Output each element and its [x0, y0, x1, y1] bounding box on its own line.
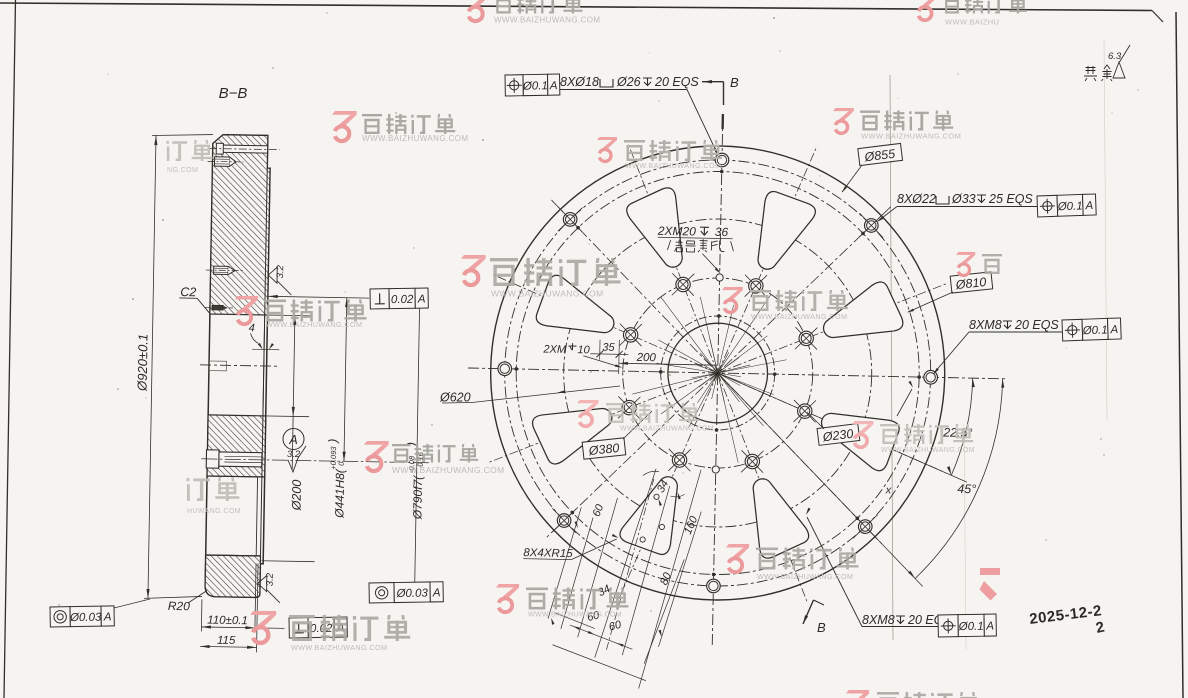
svg-text:20 EQS: 20 EQS	[1014, 318, 1059, 332]
svg-text:A: A	[1109, 324, 1118, 336]
svg-text:WWW.BAIZHUWANG.COM: WWW.BAIZHUWANG.COM	[861, 132, 961, 141]
svg-text:B: B	[817, 620, 826, 635]
svg-text:8X4XR15: 8X4XR15	[523, 547, 573, 560]
svg-text:R20: R20	[168, 599, 191, 613]
svg-text:A: A	[549, 80, 558, 92]
svg-text:Ø0.1: Ø0.1	[1057, 200, 1083, 213]
svg-text:WWW.BAIZHUWANG.COM: WWW.BAIZHUWANG.COM	[528, 612, 622, 619]
svg-text:C2: C2	[180, 285, 196, 299]
svg-text:Ø0.03: Ø0.03	[69, 612, 102, 625]
svg-text:WWW.BAIZHUWANG.COM: WWW.BAIZHUWANG.COM	[751, 312, 847, 321]
svg-text:x: x	[885, 484, 892, 496]
svg-text:WWW.BAIZHUWANG.COM: WWW.BAIZHUWANG.COM	[291, 643, 387, 652]
svg-text:WWW.BAIZHUWANG.COM: WWW.BAIZHUWANG.COM	[392, 465, 505, 475]
svg-text:A: A	[288, 433, 297, 447]
svg-text:0.02: 0.02	[391, 294, 414, 306]
svg-text:Ø0.03: Ø0.03	[395, 587, 428, 600]
svg-text:8XØ22: 8XØ22	[897, 192, 936, 206]
svg-text:10: 10	[577, 344, 590, 356]
svg-text:3.2: 3.2	[265, 572, 276, 586]
svg-text:Ø920±0.1: Ø920±0.1	[135, 334, 151, 392]
svg-text:45°: 45°	[957, 482, 976, 496]
svg-text:Ø26: Ø26	[616, 75, 641, 89]
svg-text:8XM8: 8XM8	[862, 613, 895, 627]
svg-text:35: 35	[602, 342, 615, 354]
svg-text:20 EQS: 20 EQS	[654, 75, 699, 89]
svg-text:WWW.BAIZHUWANG.COM: WWW.BAIZHUWANG.COM	[881, 447, 975, 454]
svg-text:Ø200: Ø200	[289, 480, 304, 512]
svg-text:A: A	[103, 611, 112, 623]
svg-text:200: 200	[636, 352, 657, 364]
svg-text:WWW.BAIZHUWANG.COM: WWW.BAIZHUWANG.COM	[266, 320, 362, 329]
svg-text:A: A	[985, 621, 994, 633]
svg-text:Ø0.1: Ø0.1	[1082, 324, 1108, 337]
svg-text:3.2: 3.2	[287, 449, 301, 460]
svg-text:25 EQS: 25 EQS	[988, 192, 1033, 206]
svg-text:8XØ18: 8XØ18	[560, 75, 599, 89]
svg-text:A: A	[432, 587, 441, 599]
svg-text:B: B	[730, 75, 739, 90]
svg-text:WWW.BAIZHUWANG.COM: WWW.BAIZHUWANG.COM	[620, 426, 714, 433]
svg-text:Ø0.1: Ø0.1	[522, 80, 548, 92]
svg-text:Ø0.1: Ø0.1	[958, 621, 984, 633]
svg-text:Ø441H8(: Ø441H8(	[332, 467, 347, 519]
svg-text:A: A	[1084, 200, 1093, 212]
svg-text:36: 36	[715, 225, 729, 239]
svg-text:Ø790f7(: Ø790f7(	[410, 474, 425, 521]
svg-text:2XM: 2XM	[542, 343, 567, 355]
svg-text:3.2: 3.2	[275, 264, 286, 278]
svg-text:WWW.BAIZHUWANG.COM: WWW.BAIZHUWANG.COM	[494, 16, 600, 25]
svg-text:B−B: B−B	[219, 85, 248, 102]
svg-text:NG.COM: NG.COM	[167, 167, 198, 174]
svg-text:WWW.BAIZHUWANG.COM: WWW.BAIZHUWANG.COM	[491, 289, 604, 299]
svg-text:2XM20: 2XM20	[657, 224, 697, 239]
svg-text:Ø33: Ø33	[951, 192, 976, 206]
svg-text:A: A	[417, 294, 426, 306]
svg-text:HUWANG.COM: HUWANG.COM	[187, 508, 241, 515]
svg-text:8XM8: 8XM8	[969, 318, 1002, 332]
svg-text:6.3: 6.3	[1108, 51, 1122, 62]
svg-text:WWW.BAIZHUWANG.COM: WWW.BAIZHUWANG.COM	[362, 134, 468, 143]
svg-text:115: 115	[217, 635, 236, 647]
svg-text:110±0.1: 110±0.1	[207, 615, 248, 628]
svg-text:WWW.BAIZHU: WWW.BAIZHU	[945, 18, 999, 27]
svg-text:WWW.BAIZHUWANG.COM: WWW.BAIZHUWANG.COM	[625, 161, 721, 170]
svg-text:WWW.BAIZHUWANG.COM: WWW.BAIZHUWANG.COM	[757, 572, 853, 581]
